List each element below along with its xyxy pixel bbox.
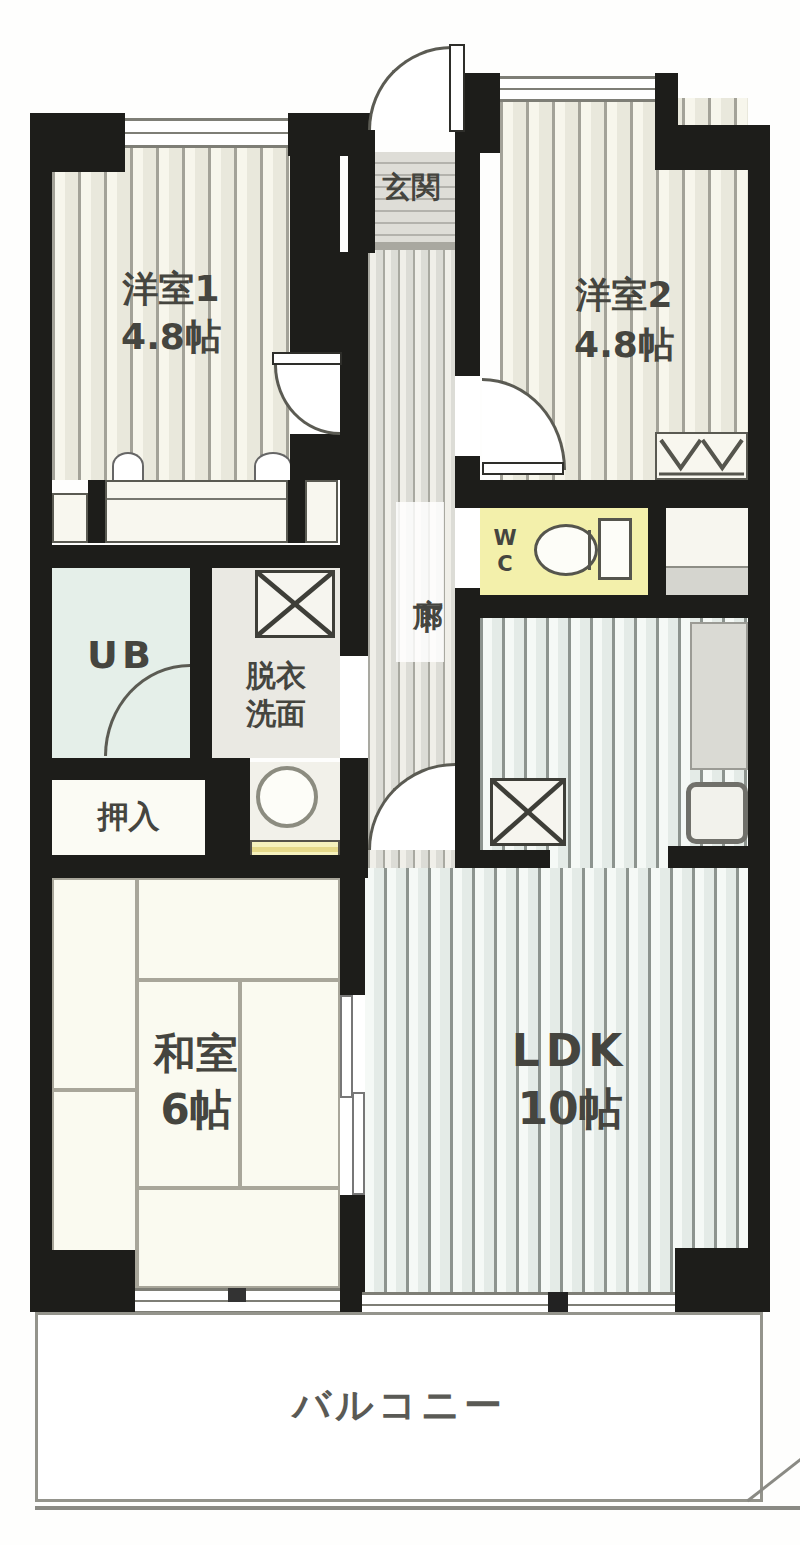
kitchen-counter <box>690 622 748 770</box>
closet-pier <box>288 480 305 543</box>
room-label-senmen-1: 脱衣 <box>212 660 340 692</box>
yoshitsu2-closet <box>655 432 748 480</box>
toilet-tank-icon <box>598 518 632 580</box>
window-post <box>228 1288 246 1302</box>
door-opening <box>455 376 480 456</box>
yoshitsu1-closet <box>105 480 288 543</box>
yoshitsu2-door-leaf <box>482 462 564 475</box>
wall <box>30 113 125 172</box>
room-label-oshiire: 押入 <box>52 800 205 833</box>
wall <box>455 480 770 508</box>
door-opening <box>340 656 368 758</box>
closet-pier <box>88 480 105 543</box>
wall <box>675 1248 770 1312</box>
room-label-yoshitsu2-name: 洋室2 <box>500 276 748 314</box>
room-label-rouka: 廊下 <box>396 502 444 662</box>
closet-side-box <box>52 493 88 543</box>
wall <box>340 868 365 995</box>
wall <box>30 545 340 568</box>
folding-door-icon <box>657 434 746 478</box>
window-yoshitsu2-top <box>500 76 655 102</box>
wall <box>30 855 368 878</box>
room-label-yoshitsu1-name: 洋室1 <box>52 270 290 308</box>
wall <box>478 73 500 153</box>
window-yoshitsu1-top <box>125 118 288 148</box>
room-yoshitsu1-floor <box>52 146 290 480</box>
room-label-senmen-2: 洗面 <box>212 698 340 730</box>
sliding-door-panel <box>340 995 353 1098</box>
entrance-door-leaf <box>449 44 465 132</box>
ldk-storage-xbox <box>490 778 566 846</box>
room-ldk-floor-lower <box>362 868 748 1292</box>
wall <box>668 846 748 868</box>
stove-icon <box>686 782 748 844</box>
wall <box>290 434 340 480</box>
wall <box>30 1250 135 1312</box>
sliding-door-panel <box>352 1092 365 1195</box>
tatami-mat <box>137 878 340 980</box>
floor-plan: 洋室1 4.8帖 洋室2 4.8帖 玄関 廊下 WC UB 脱衣 洗面 押入 和… <box>0 0 800 1545</box>
wall-left-outer <box>30 172 52 1312</box>
room-label-yoshitsu2-size: 4.8帖 <box>500 326 748 364</box>
room-label-ldk-size: 10帖 <box>440 1086 700 1132</box>
yoshitsu1-closet-line <box>107 498 286 500</box>
wall <box>648 508 666 595</box>
wall <box>340 252 368 656</box>
wall <box>52 758 250 780</box>
closet-door-arc <box>112 452 144 480</box>
toilet-seat-line <box>588 530 591 570</box>
room-label-washitsu-size: 6帖 <box>52 1088 340 1132</box>
closet-door-arc <box>254 452 292 480</box>
room-label-ub: UB <box>52 636 190 676</box>
wall-right-outer <box>748 125 770 1312</box>
tatami-mat <box>240 980 340 1188</box>
wall <box>455 595 770 618</box>
wall <box>455 252 480 376</box>
closet-side-box <box>305 480 338 543</box>
wall <box>290 146 340 358</box>
balcony-outer-line <box>35 1506 800 1510</box>
room-label-balcony: バルコニー <box>35 1386 763 1426</box>
room-label-ldk-name: LDK <box>440 1028 700 1074</box>
room-label-wc: WC <box>486 514 516 590</box>
tatami-mat <box>137 980 240 1188</box>
wall <box>205 780 250 855</box>
entrance-door-arc <box>368 46 452 130</box>
room-label-genkan: 玄関 <box>368 172 455 202</box>
tatami-mat <box>137 1188 340 1288</box>
room-label-yoshitsu1-size: 4.8帖 <box>52 318 290 356</box>
washing-machine-icon <box>255 570 335 638</box>
door-opening <box>455 508 480 588</box>
wall <box>340 758 368 868</box>
door-leaf-wall-stub <box>455 850 550 868</box>
room-label-washitsu-name: 和室 <box>52 1032 340 1076</box>
storage-counter-band <box>666 568 748 595</box>
basin-circle-icon <box>256 766 318 828</box>
wall <box>455 588 480 868</box>
genkan-step <box>368 242 455 250</box>
storage-beside-wc <box>666 508 748 568</box>
wall <box>190 568 212 758</box>
